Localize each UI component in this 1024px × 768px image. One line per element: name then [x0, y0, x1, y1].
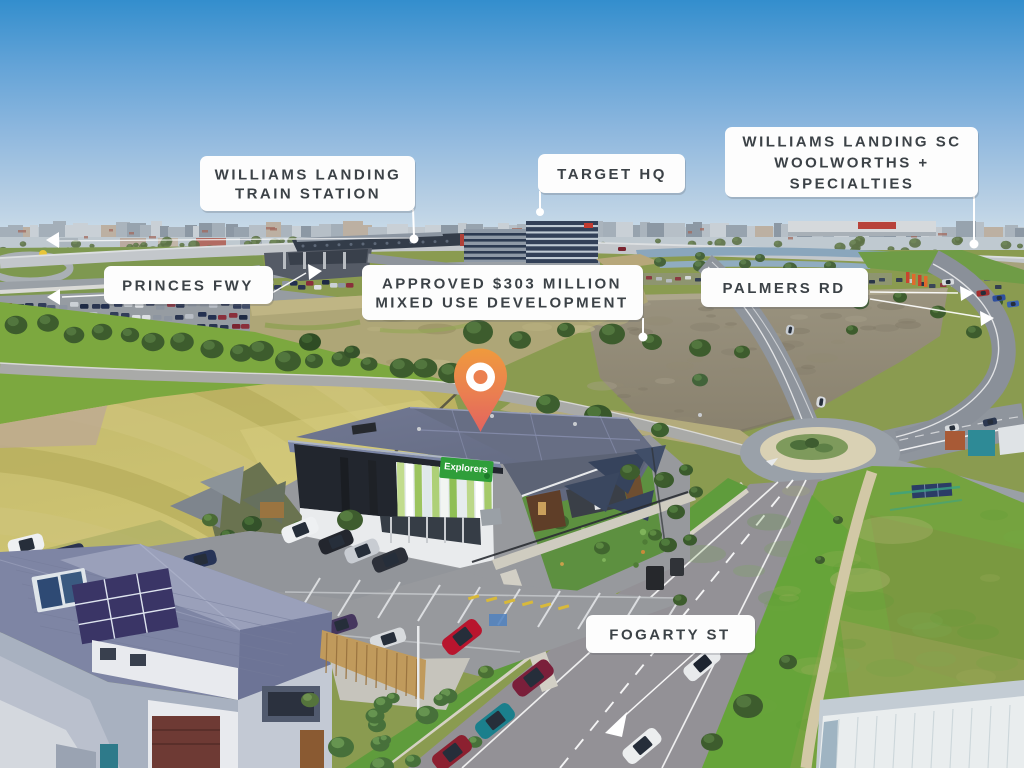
svg-text:WILLIAMS LANDING SC: WILLIAMS LANDING SC [742, 133, 961, 150]
svg-text:TARGET HQ: TARGET HQ [557, 166, 667, 183]
svg-text:WILLIAMS LANDING: WILLIAMS LANDING [215, 166, 402, 183]
svg-text:TRAIN STATION: TRAIN STATION [235, 185, 381, 202]
svg-text:SPECIALTIES: SPECIALTIES [790, 175, 915, 192]
svg-text:APPROVED $303 MILLION: APPROVED $303 MILLION [382, 275, 622, 292]
svg-text:WOOLWORTHS +: WOOLWORTHS + [774, 154, 929, 171]
svg-text:FOGARTY ST: FOGARTY ST [609, 626, 730, 643]
svg-text:PRINCES FWY: PRINCES FWY [122, 277, 254, 294]
svg-text:MIXED USE DEVELOPMENT: MIXED USE DEVELOPMENT [375, 294, 628, 311]
svg-text:PALMERS RD: PALMERS RD [722, 280, 845, 297]
